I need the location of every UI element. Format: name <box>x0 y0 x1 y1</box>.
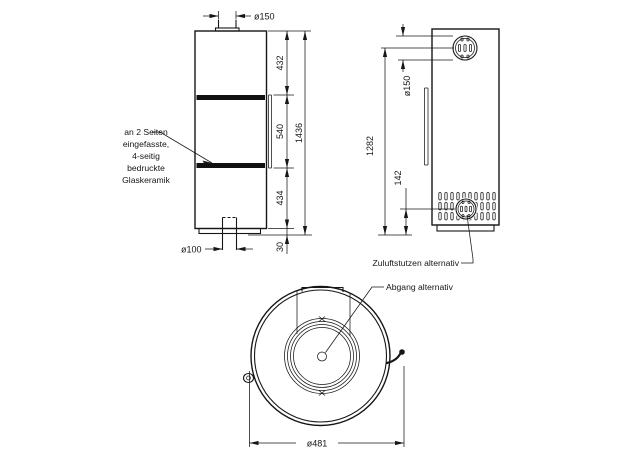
side-plinth <box>437 225 494 231</box>
dim-label-1282: 1282 <box>365 136 375 156</box>
dim-label-1436: 1436 <box>294 123 304 143</box>
glass-note-line-2: eingefasste, <box>123 139 169 149</box>
front-body-outline <box>195 31 267 229</box>
top-center-outlet <box>318 352 327 361</box>
stove-drawing-canvas: ø150 432 540 434 30 1436 ø100 an 2 Sei <box>0 0 624 460</box>
dim-label-flue-front: ø150 <box>254 12 275 22</box>
front-dimensions: ø150 432 540 434 30 1436 ø100 <box>181 11 312 255</box>
side-glass-edge <box>425 88 429 165</box>
technical-drawing-page: ø150 432 540 434 30 1436 ø100 an 2 Sei <box>0 0 624 460</box>
top-rings <box>285 317 360 396</box>
air-inlet-connector <box>455 198 478 221</box>
dim-label-432: 432 <box>275 55 285 70</box>
glass-note: an 2 Seiten eingefasste, 4-seitig bedruc… <box>122 127 212 185</box>
front-view <box>195 20 272 250</box>
dim-label-flue-side: ø150 <box>402 76 412 97</box>
glass-note-line-4: bedruckte <box>127 163 165 173</box>
side-view <box>425 29 500 231</box>
glass-note-line-5: Glaskeramik <box>122 175 170 185</box>
outlet-note: Abgang alternativ <box>326 282 454 353</box>
air-inlet-note-text: Zuluftstutzen alternativ <box>373 258 460 268</box>
dim-label-434: 434 <box>275 190 285 205</box>
dim-label-142: 142 <box>393 170 403 185</box>
dim-label-30: 30 <box>275 242 285 252</box>
glass-note-line-1: an 2 Seiten <box>124 127 168 137</box>
air-inlet-note: Zuluftstutzen alternativ <box>373 215 473 268</box>
outlet-note-text: Abgang alternativ <box>386 282 454 292</box>
front-glass-window <box>197 95 272 168</box>
dim-label-air-pipe: ø100 <box>181 245 202 255</box>
top-left-knob <box>244 374 254 383</box>
top-view <box>244 287 405 426</box>
rear-flue-connector <box>453 36 477 60</box>
glass-note-line-3: 4-seitig <box>132 151 160 161</box>
dim-label-481: ø481 <box>307 439 328 449</box>
dim-label-540: 540 <box>275 124 285 139</box>
top-outer-circle <box>251 287 390 426</box>
front-flue-pipe <box>216 20 240 31</box>
front-plinth <box>199 229 261 234</box>
